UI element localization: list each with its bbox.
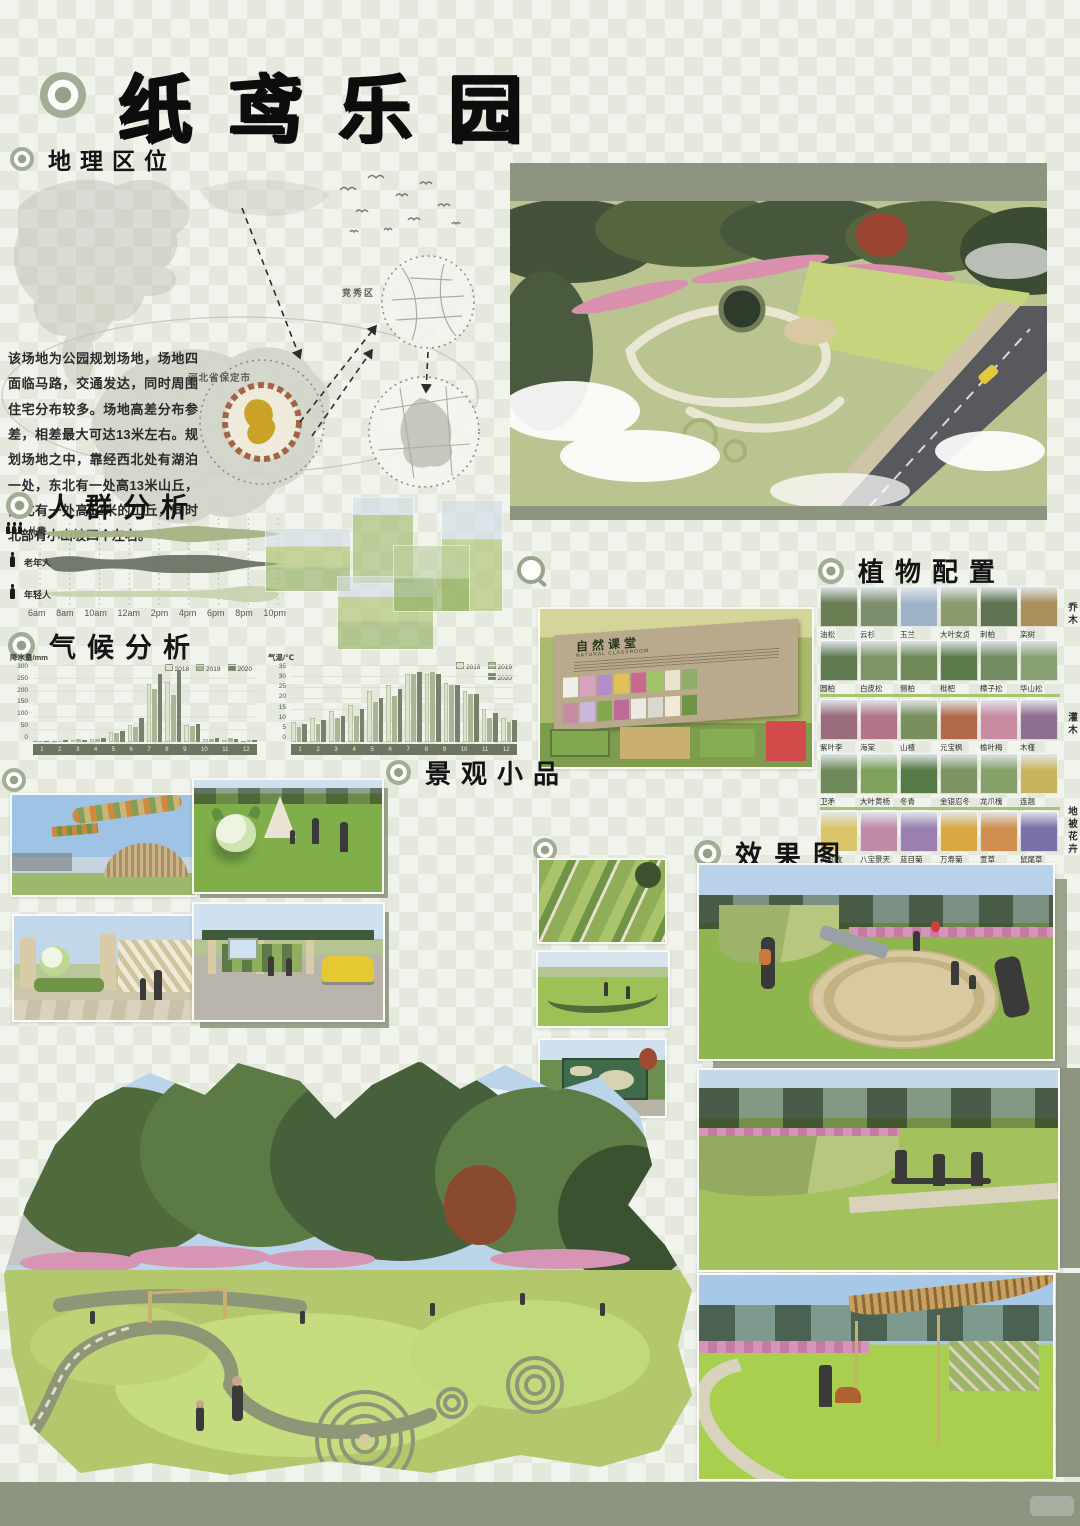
plant-item: 卫矛 [820,753,858,807]
crowd-activity-chart: 儿童 老年人 年轻人 6am8am10am12am2pm4pm6pm8pm10p… [2,512,302,622]
plant-item: 紫叶李 [820,699,858,753]
bar-group [310,665,326,742]
plant-item: 大叶女贞 [940,586,978,640]
plant-name: 金银忍冬 [940,796,970,807]
plant-thumbnail [900,699,938,740]
group-label-youth: 年轻人 [24,588,51,601]
plant-name: 大叶黄杨 [860,796,890,807]
temperature-chart: 气温/℃ 35302520151050 2018 2019 2020 12345… [268,652,520,758]
bar-group [501,665,517,742]
bar [463,691,468,742]
dog [835,1387,861,1403]
plant-row-trees-1: 油松云杉玉兰大叶女贞刺柏栾树 [820,586,1058,640]
plant-item: 山楂 [900,699,938,753]
bar [52,741,57,742]
month-label: 3 [76,747,79,753]
plant-thumbnail [820,699,858,740]
bar [379,698,384,742]
bar [44,741,49,742]
bar [367,691,372,742]
bar-group [203,665,219,742]
bar [329,711,334,742]
children-icon [6,526,24,534]
plant-item: 万寿菊 [940,811,978,865]
bar [63,740,68,742]
bar [297,727,302,742]
red-balloon [931,921,940,932]
plant-item: 海棠 [860,699,898,753]
plant-name: 樟子松 [980,683,1003,694]
bar [184,725,189,742]
plant-item: 龙爪槐 [980,753,1018,807]
month-label: 9 [443,747,446,753]
bar [203,739,208,742]
bar [247,740,252,742]
plant-thumbnail [980,699,1018,740]
temp-bars [291,665,517,742]
plant-item: 木槿 [1020,699,1058,753]
bar [109,732,114,742]
ytick: 30 [268,673,288,680]
bar [482,709,487,742]
month-label: 8 [165,747,168,753]
time-label: 12am [118,608,141,618]
month-label: 7 [407,747,410,753]
footer-bar [0,1482,1080,1526]
plant-name: 云杉 [860,629,875,640]
decorative-bullet-icon [2,768,26,792]
month-label: 4 [352,747,355,753]
month-label: 5 [112,747,115,753]
bar [302,724,307,742]
bar [71,740,76,742]
scenery-photo-street [192,902,385,1022]
elderly-icon [10,556,17,567]
plant-thumbnail [1020,586,1058,627]
plant-name: 圆柏 [820,683,835,694]
plant-item: 元宝枫 [940,699,978,753]
precipitation-chart: 降水量/mm 300250200150100500 2018 2019 2020… [10,652,260,758]
plant-row-shrubs-2: 卫矛大叶黄杨冬青金银忍冬龙爪槐连翘 [820,753,1058,807]
plant-thumbnail [1020,640,1058,681]
precip-yticks: 300250200150100500 [10,663,30,741]
bar [196,724,201,742]
magnifier-icon [517,556,545,584]
bar [291,722,296,742]
month-label: 4 [94,747,97,753]
plant-thumbnail [980,640,1018,681]
time-label: 8am [56,608,74,618]
month-label: 3 [334,747,337,753]
time-label: 8pm [235,608,253,618]
bar [468,694,473,742]
effect-render-bikes [697,1068,1060,1272]
month-label: 10 [201,747,208,753]
plant-item: 栾树 [1020,586,1058,640]
hero-aerial-scene [510,201,1047,506]
plant-item: 蓝目菊 [900,811,938,865]
bar [82,740,87,742]
plant-name: 白皮松 [860,683,883,694]
arch-bridge [104,843,188,877]
poster-title: 纸鸢乐园 [118,50,558,157]
plant-thumbnail [860,586,898,627]
time-label: 2pm [151,608,169,618]
bar [209,739,214,742]
month-label: 6 [389,747,392,753]
bar-group [147,665,163,742]
plant-name: 枇杷 [940,683,955,694]
poster-panel [228,938,258,960]
plant-item: 华山松 [1020,640,1058,694]
city-skyline [12,853,72,871]
photographer [993,955,1031,1019]
bar-group [184,665,200,742]
plant-thumbnail [980,753,1018,794]
plant-thumbnail [860,753,898,794]
plant-item: 鼠尾草 [1020,811,1058,865]
plant-thumbnail [900,640,938,681]
bar [90,739,95,742]
ytick: 200 [10,687,30,694]
bar [165,682,170,742]
bar [39,741,44,742]
sandpit [809,949,999,1049]
terraced-slope [949,1341,1039,1391]
bar [430,672,435,742]
month-label: 1 [298,747,301,753]
bar-group [405,665,421,742]
ytick: 35 [268,663,288,670]
bar [310,718,315,742]
plant-thumbnail [940,586,978,627]
month-label: 12 [503,747,510,753]
precip-axis-label: 降水量/mm [10,652,48,663]
bar-group [348,665,364,742]
group-label-children: 儿童 [28,524,46,537]
bar-group [367,665,383,742]
month-label: 2 [58,747,61,753]
hero-aerial-render [510,163,1047,520]
scenery-photo-entrance [12,914,199,1022]
nature-classroom-photo: 自然课堂 NATURAL CLASSROOM [538,607,814,769]
plant-item: 冬青 [900,753,938,807]
bar [114,733,119,742]
ytick: 100 [10,710,30,717]
category-groundcover: 地被花卉 [1064,806,1078,856]
bar-group [52,665,68,742]
bar [241,741,246,742]
yellow-car [322,956,374,982]
watermark-chip [1030,1496,1074,1516]
bar [222,740,227,742]
month-label: 6 [130,747,133,753]
ytick: 150 [10,698,30,705]
bar [171,695,176,742]
render-terraced-lawn [537,858,667,944]
bar-group [109,665,125,742]
plant-thumbnail [940,753,978,794]
bar-group [90,665,106,742]
bar [392,696,397,742]
ytick: 15 [268,704,288,711]
plant-thumbnail [980,586,1018,627]
bar [120,731,125,742]
masked-park-render [0,1055,692,1483]
bar [512,720,517,742]
month-label: 12 [243,747,250,753]
bar [152,689,157,742]
plant-name: 栾树 [1020,629,1035,640]
plant-item: 枇杷 [940,640,978,694]
bar [411,674,416,742]
month-label: 8 [425,747,428,753]
effect-render-dogwalk [697,1273,1055,1481]
plant-name: 海棠 [860,742,875,753]
month-label: 9 [183,747,186,753]
bar [133,727,138,742]
bar [354,716,359,742]
plant-item: 白皮松 [860,640,898,694]
bar [335,718,340,742]
bar [76,739,81,742]
time-label: 6am [28,608,46,618]
bar-group [241,665,257,742]
bar [444,683,449,742]
bar [147,684,152,742]
district-map-circle [382,256,474,348]
collage-photo [393,545,470,612]
ytick: 25 [268,683,288,690]
bar [177,670,182,742]
bar [228,738,233,742]
ytick: 5 [268,724,288,731]
bar-group [444,665,460,742]
bird-flock [340,176,460,233]
section-plants-heading: 植物配置 [818,552,1006,589]
time-label: 10pm [263,608,286,618]
bar-group [291,665,307,742]
bar [101,738,106,742]
scenery-photo-mascot-lawn [192,778,384,894]
bar [341,716,346,742]
bar [373,702,378,742]
bar [348,705,353,742]
red-flower-bed [766,721,806,761]
plant-row-groundcover: 黄刺玫八宝景天蓝目菊万寿菊萱草鼠尾草 [820,811,1058,865]
plant-name: 榆叶梅 [980,742,1003,753]
bar [417,672,422,742]
plant-thumbnail [860,699,898,740]
month-label: 1 [40,747,43,753]
bar-group [386,665,402,742]
bar-group [222,665,238,742]
plant-thumbnail [820,586,858,627]
bar [425,674,430,742]
ytick: 50 [10,722,30,729]
bar [405,674,410,742]
plant-name: 连翘 [1020,796,1035,807]
hedge-curve [548,980,658,1013]
bar [474,694,479,742]
plant-thumbnail [820,753,858,794]
ytick: 300 [10,663,30,670]
plant-row-shrubs-1: 紫叶李海棠山楂元宝枫榆叶梅木槿 [820,699,1058,753]
bar [234,739,239,742]
plant-item: 玉兰 [900,586,938,640]
bar [95,739,100,742]
plants-title: 植物配置 [858,552,1006,589]
play-mound [697,1136,899,1196]
plant-name: 紫叶李 [820,742,843,753]
plant-item: 油松 [820,586,858,640]
category-shrubs: 灌木 [1064,712,1078,737]
plant-item: 刺柏 [980,586,1018,640]
plant-name: 山楂 [900,742,915,753]
section-scenery-heading: 景观小品 [386,754,569,791]
time-label: 6pm [207,608,225,618]
month-label: 7 [147,747,150,753]
plant-thumbnail [900,811,938,852]
plant-name: 卫矛 [820,796,835,807]
plant-item: 连翘 [1020,753,1058,807]
bar [139,718,144,742]
ytick: 250 [10,675,30,682]
plant-thumbnail [860,640,898,681]
ytick: 20 [268,693,288,700]
plant-item: 萱草 [980,811,1018,865]
bar [436,674,441,742]
bar [449,685,454,742]
plants-bullet-icon [818,558,844,584]
precip-month-axis: 123456789101112 [33,744,257,755]
render-lawn-hedge [536,950,670,1028]
plant-thumbnail [1020,753,1058,794]
bar [158,674,163,742]
sign-board: 自然课堂 NATURAL CLASSROOM [554,618,798,731]
plant-item: 樟子松 [980,640,1018,694]
plant-name: 龙爪槐 [980,796,1003,807]
ytick: 10 [268,714,288,721]
plant-name: 大叶女贞 [940,629,970,640]
bar-group [425,665,441,742]
plant-thumbnail [900,586,938,627]
youth-icon [10,588,17,599]
temp-axis-label: 气温/℃ [268,652,294,663]
plant-name: 油松 [820,629,835,640]
kite-canopy [71,793,182,824]
month-label: 11 [222,747,228,753]
bar-group [482,665,498,742]
plant-item: 云杉 [860,586,898,640]
site-map-circle [369,377,479,487]
ytick: 0 [10,734,30,741]
bar-group [165,665,181,742]
bar [386,685,391,742]
precip-bars [33,665,257,742]
ytick: 0 [268,734,288,741]
bar [321,720,326,742]
bar [33,741,38,742]
plant-item: 八宝景天 [860,811,898,865]
plant-thumbnail [820,640,858,681]
month-label: 5 [370,747,373,753]
plant-item: 侧柏 [900,640,938,694]
plant-name: 冬青 [900,796,915,807]
plant-thumbnail [900,753,938,794]
bar-group [33,665,49,742]
bar [360,709,365,742]
bar-group [463,665,479,742]
plant-name: 刺柏 [980,629,995,640]
dog-owner [819,1365,832,1407]
bar [215,738,220,742]
bar [316,724,321,742]
district-label: 竞秀区 [342,286,375,299]
category-trees: 乔木 [1064,602,1078,627]
plant-name: 木槿 [1020,742,1035,753]
path [849,1183,1059,1214]
plant-row-trees-2: 圆柏白皮松侧柏枇杷樟子松华山松 [820,640,1058,694]
bar [128,725,133,742]
green-mascot [216,814,256,852]
mascot-sculpture [40,946,70,976]
temp-yticks: 35302520151050 [268,663,288,741]
flower-hedge [849,927,1053,937]
month-label: 11 [482,747,488,753]
bar [507,722,512,742]
plant-thumbnail [980,811,1018,852]
group-label-elderly: 老年人 [24,556,51,569]
bar-group [128,665,144,742]
effect-render-playground [697,863,1055,1061]
time-label: 10am [84,608,107,618]
scenery-bullet-icon [386,760,411,785]
plant-item: 金银忍冬 [940,753,978,807]
plant-item: 圆柏 [820,640,858,694]
title-bullet-icon [40,72,86,118]
month-label: 10 [461,747,468,753]
time-label: 4pm [179,608,197,618]
bar [493,713,498,742]
bar [501,718,506,742]
stream-series [40,555,278,573]
plant-item: 榆叶梅 [980,699,1018,753]
bar-group [329,665,345,742]
bar [58,741,63,742]
plant-thumbnail [1020,699,1058,740]
bar-group [71,665,87,742]
plant-name: 华山松 [1020,683,1043,694]
plant-thumbnail [940,811,978,852]
plant-name: 玉兰 [900,629,915,640]
plant-item: 大叶黄杨 [860,753,898,807]
design-poster: 纸鸢乐园 地理区位 [0,0,1080,1526]
scenery-photo-kites [10,793,197,897]
plant-thumbnail [1020,811,1058,852]
scenery-title: 景观小品 [425,754,569,791]
month-label: 2 [316,747,319,753]
plant-name: 侧柏 [900,683,915,694]
flag-pole [937,1315,940,1445]
bar [455,685,460,742]
bar [190,726,195,742]
time-axis: 6am8am10am12am2pm4pm6pm8pm10pm [28,608,286,618]
plant-thumbnail [940,640,978,681]
bar [252,740,257,742]
bar [398,689,403,742]
plant-thumbnail [940,699,978,740]
